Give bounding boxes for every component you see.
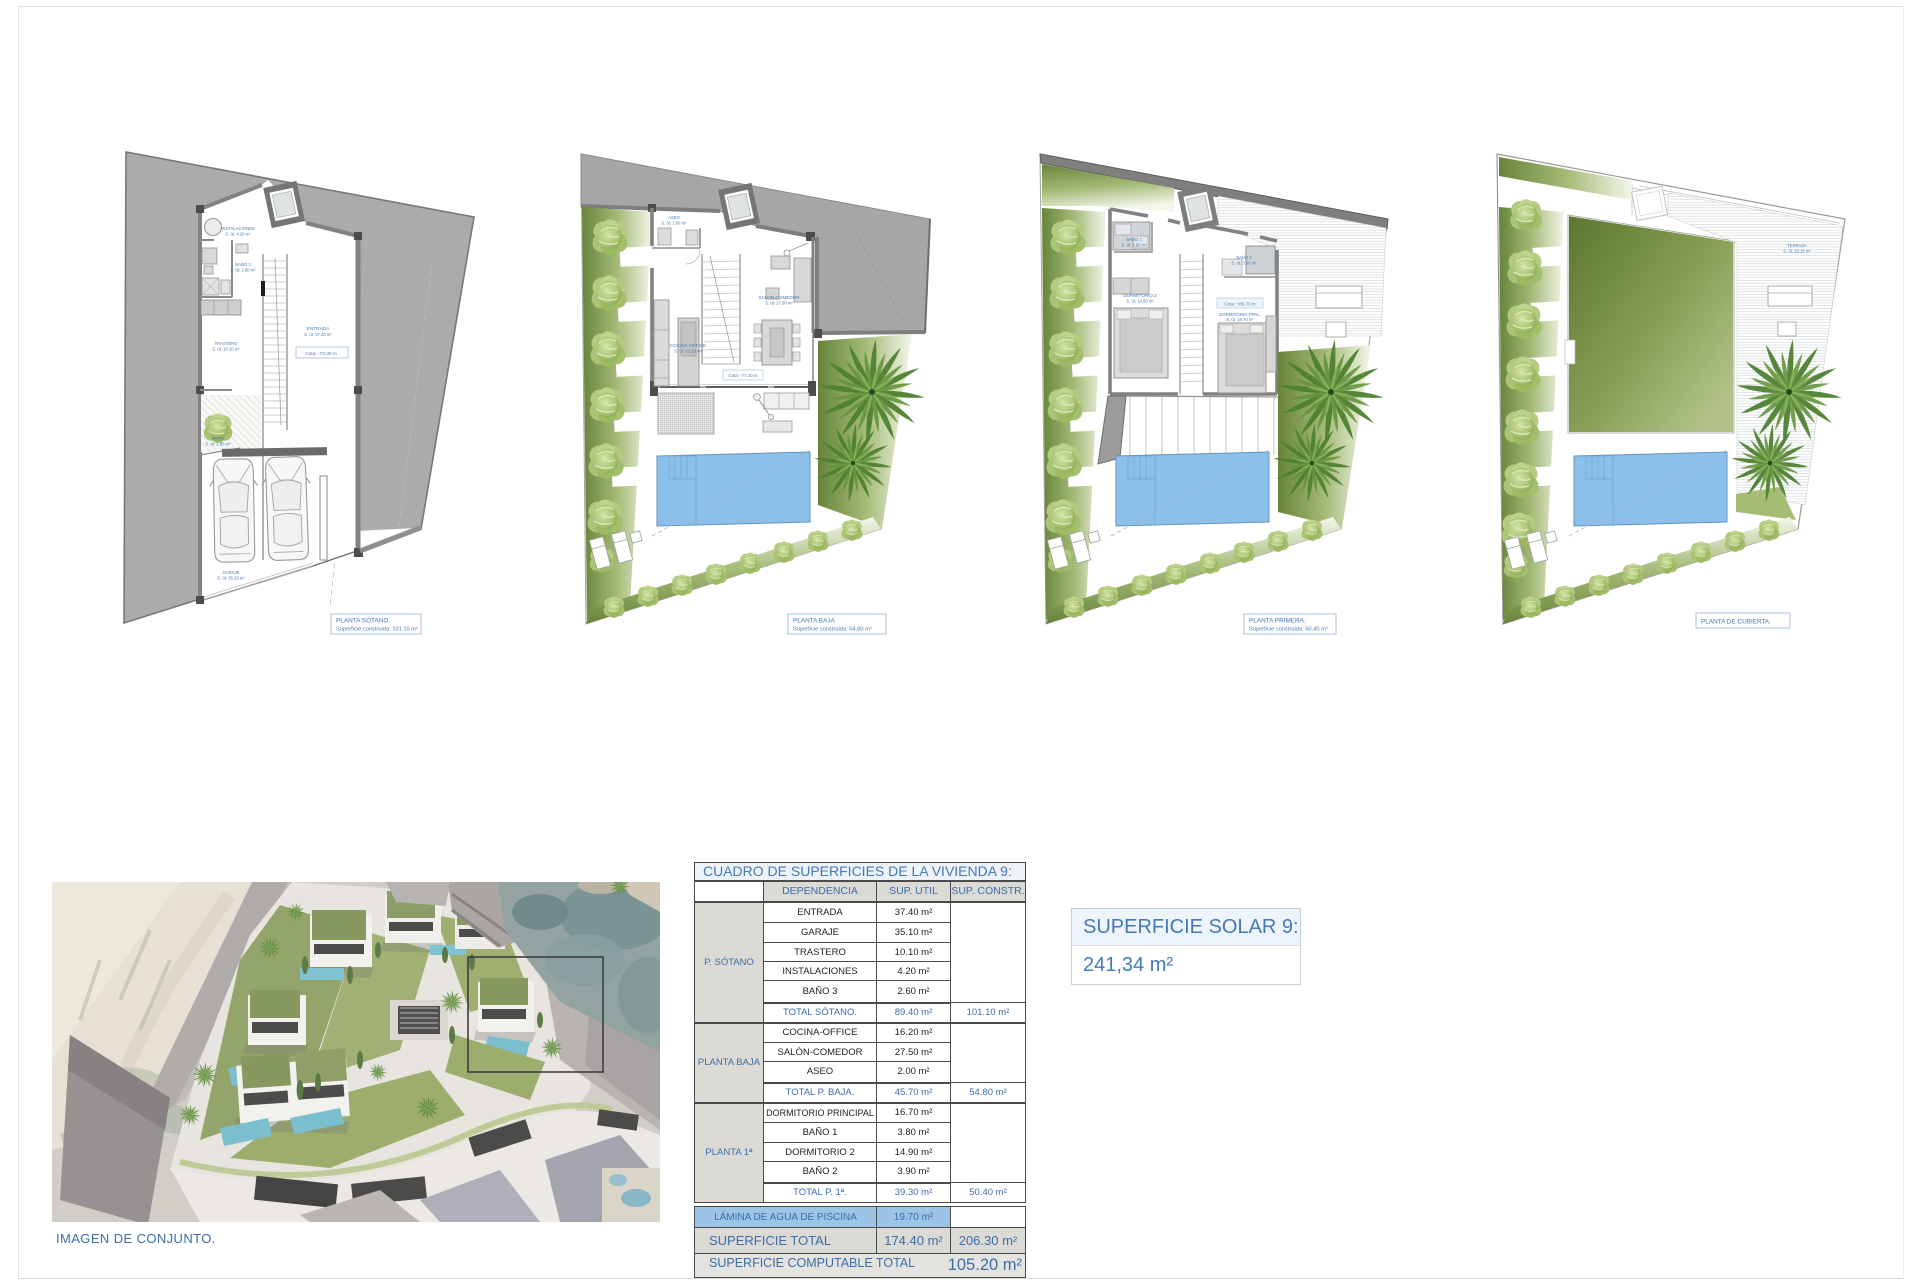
svg-text:GARAJE: GARAJE <box>223 570 240 575</box>
svg-text:Superficie construida: 54.80 m: Superficie construida: 54.80 m² <box>793 627 872 633</box>
svg-text:Cota: -77.40 m: Cota: -77.40 m <box>728 373 757 378</box>
svg-text:Cota: -73.30 m: Cota: -73.30 m <box>305 351 337 357</box>
svg-text:TERRAZA: TERRAZA <box>1787 243 1807 248</box>
svg-text:Cota: +80.70 m: Cota: +80.70 m <box>1224 301 1256 306</box>
svg-text:PLANTA DE CUBIERTA.: PLANTA DE CUBIERTA. <box>1701 619 1771 626</box>
svg-text:ASEO: ASEO <box>668 215 680 220</box>
svg-text:PLANTA PRIMERA.: PLANTA PRIMERA. <box>1249 618 1306 625</box>
svg-text:S. út: 35.10 m²: S. út: 35.10 m² <box>217 575 245 580</box>
svg-text:Superficie construida: 101.10: Superficie construida: 101.10 m² <box>336 627 418 633</box>
svg-text:PLANTA SÓTANO.: PLANTA SÓTANO. <box>336 616 390 625</box>
svg-text:S. út: 27.50 m²: S. út: 27.50 m² <box>765 301 793 306</box>
svg-text:S. út: 4.20 m²: S. út: 4.20 m² <box>225 231 251 236</box>
svg-text:S. út: 3.90 m²: S. út: 3.90 m² <box>1231 260 1257 265</box>
svg-text:S. út: 14.90 m²: S. út: 14.90 m² <box>1126 299 1154 304</box>
svg-text:COCINA-OFFICE: COCINA-OFFICE <box>670 343 706 348</box>
svg-text:BAÑO 2: BAÑO 2 <box>1236 255 1252 260</box>
svg-text:S. út: 16.20 m²: S. út: 16.20 m² <box>674 349 702 354</box>
svg-text:S. út: 37.40 m²: S. út: 37.40 m² <box>304 332 332 337</box>
svg-text:S. út: 16.70 m²: S. út: 16.70 m² <box>1226 317 1254 322</box>
svg-text:BAÑO 3: BAÑO 3 <box>235 262 251 267</box>
svg-text:S. út: 10.10 m²: S. út: 10.10 m² <box>212 346 240 351</box>
svg-text:Superficie construida: 50.40 m: Superficie construida: 50.40 m² <box>1249 627 1328 633</box>
svg-text:PATIO: PATIO <box>212 436 225 441</box>
svg-text:DORMITORIO 2: DORMITORIO 2 <box>1123 293 1157 298</box>
svg-text:PLANTA BAJA: PLANTA BAJA <box>793 618 836 625</box>
svg-text:S. út: 3.80 m²: S. út: 3.80 m² <box>1121 242 1147 247</box>
svg-text:INSTALACIONES: INSTALACIONES <box>221 226 254 231</box>
svg-text:S. út: 20.10 m²: S. út: 20.10 m² <box>1783 248 1811 253</box>
svg-text:S. út: 2.60 m²: S. út: 2.60 m² <box>230 267 256 272</box>
svg-text:BAÑO 1: BAÑO 1 <box>1126 237 1142 242</box>
svg-text:SALÓN-COMEDOR: SALÓN-COMEDOR <box>758 294 800 300</box>
svg-text:S. út: 2.00 m²: S. út: 2.00 m² <box>661 220 687 225</box>
svg-text:TRASTERO: TRASTERO <box>215 341 239 346</box>
svg-text:S. út: 1.80 m²: S. út: 1.80 m² <box>205 441 231 446</box>
